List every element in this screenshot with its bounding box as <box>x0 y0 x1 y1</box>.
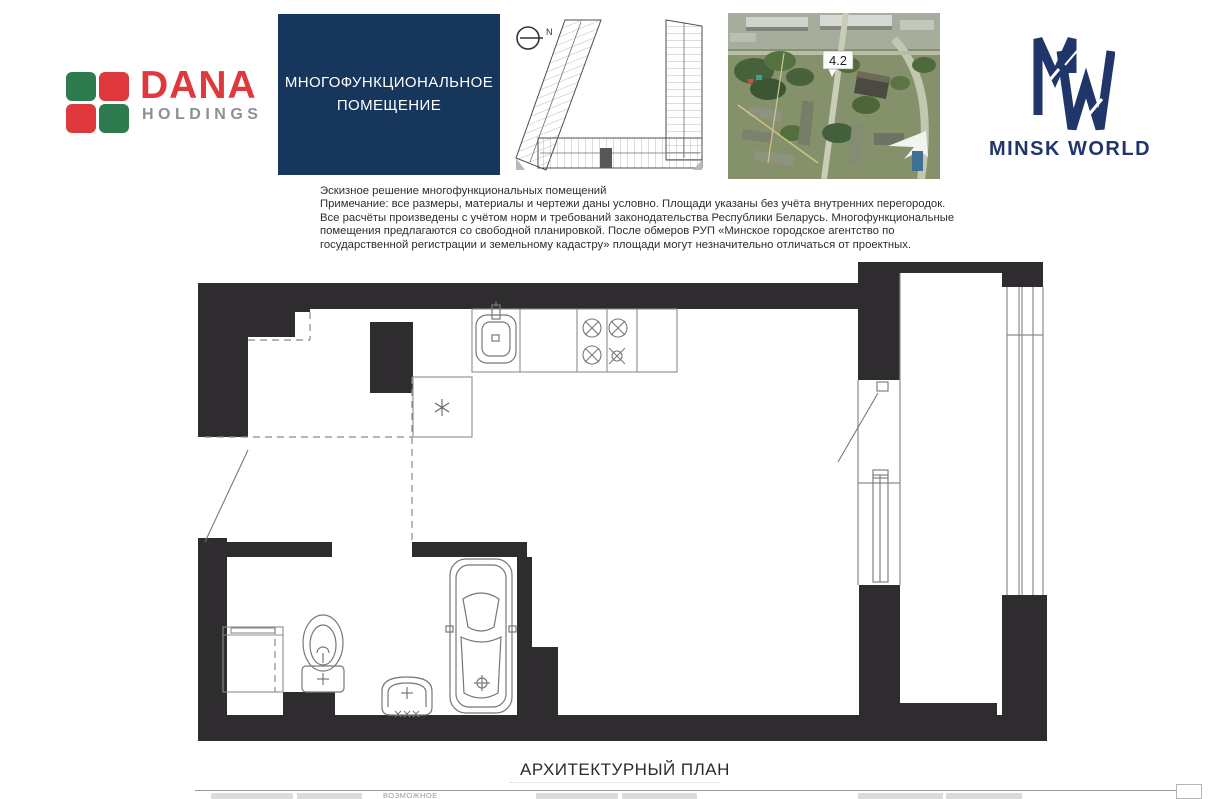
disclaimer-note: Эскизное решение многофункциональных пом… <box>320 185 960 252</box>
legend-swatch <box>211 793 293 799</box>
walls <box>198 262 1047 741</box>
legend-swatch <box>536 793 618 799</box>
legend-label: ВОЗМОЖНОЕ <box>383 791 438 799</box>
footer-dotted-rule <box>510 782 720 783</box>
plan-title: АРХИТЕКТУРНЫЙ ПЛАН <box>195 760 1055 780</box>
stove <box>583 319 627 364</box>
minsk-world-wordmark: MINSK WORLD <box>978 138 1162 161</box>
unit-type-banner: МНОГОФУНКЦИОНАЛЬНОЕ ПОМЕЩЕНИЕ <box>278 14 500 175</box>
north-arrow-icon: N <box>517 27 553 49</box>
highlighted-unit <box>600 148 612 168</box>
svg-text:4.2: 4.2 <box>829 53 847 68</box>
legend-swatch <box>858 793 943 799</box>
floor-plan-drawing <box>195 255 1055 755</box>
legend-swatch <box>946 793 1022 799</box>
minsk-world-logo: MINSK WORLD <box>978 24 1162 164</box>
kitchen-sink <box>476 301 516 363</box>
dana-holdings-logo: DANA HOLDINGS <box>66 70 276 140</box>
aerial-site-view: 4.2 <box>728 13 940 179</box>
washing-machine <box>223 627 283 692</box>
bathtub <box>446 559 516 713</box>
unit-type-line1: МНОГОФУНКЦИОНАЛЬНОЕ <box>278 71 500 94</box>
square-green-icon <box>99 104 129 133</box>
entry-door-swing <box>205 450 248 542</box>
washbasin <box>382 677 432 717</box>
unit-type-line2: ПОМЕЩЕНИЕ <box>278 94 500 117</box>
dana-holdings-label: HOLDINGS <box>142 106 262 124</box>
legend-swatch <box>297 793 362 799</box>
disclaimer-line: Эскизное решение многофункциональных пом… <box>320 185 960 198</box>
building-key-plan: N <box>508 12 720 184</box>
legend-swatch <box>622 793 697 799</box>
minsk-world-monogram-icon <box>1025 24 1115 136</box>
disclaimer-line: Примечание: все размеры, материалы и чер… <box>320 198 960 211</box>
balcony-window <box>873 470 888 582</box>
balcony-door <box>838 382 888 462</box>
legend-frame <box>1176 784 1202 799</box>
fridge-box <box>413 377 472 437</box>
disclaimer-line: Все расчёты произведены с учётом норм и … <box>320 212 960 225</box>
footer-rule <box>195 790 1176 791</box>
dana-wordmark: DANA <box>140 64 257 108</box>
square-red-icon <box>66 104 96 133</box>
square-red-icon <box>99 72 129 101</box>
plan-sheet: DANA HOLDINGS МНОГОФУНКЦИОНАЛЬНОЕ ПОМЕЩЕ… <box>0 0 1224 799</box>
disclaimer-line: государственной регистрации и земельному… <box>320 239 960 252</box>
disclaimer-line: помещения предлагаются со свободной план… <box>320 225 960 238</box>
square-green-icon <box>66 72 96 101</box>
toilet <box>302 615 344 692</box>
north-label: N <box>546 27 553 37</box>
dana-squares-icon <box>66 72 130 134</box>
